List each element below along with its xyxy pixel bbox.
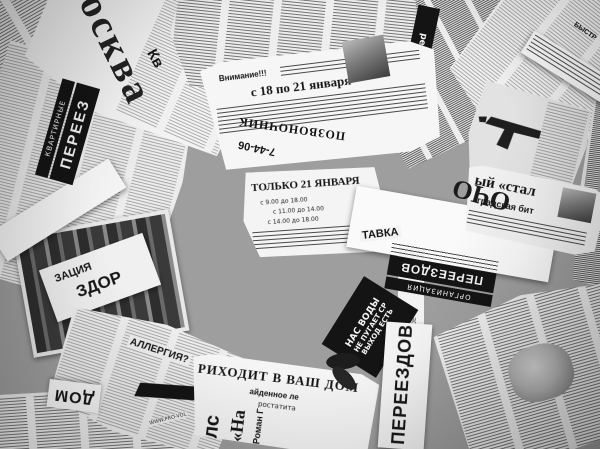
schedule-line: с 9.00 до 18.00: [260, 196, 308, 206]
article-photo: [342, 35, 391, 84]
text-roman: Роман Г: [251, 404, 266, 445]
text-naydennoe: айденное ле: [249, 387, 299, 402]
text-ls: лс: [200, 396, 228, 440]
schedule-line: с 11.00 до 14.00: [273, 205, 325, 216]
headline-vnimanie: Внимание!!!: [218, 69, 267, 84]
headline-pereezdov-big: ПЕРЕЕЗДОВ: [388, 326, 417, 445]
article-photo: [557, 187, 596, 223]
headline-tolko21: ТОЛЬКО 21 ЯНВАРЯ: [251, 175, 360, 195]
newspaper-collage-photo: осква Кв КВАРТИРНЫЕ ПЕРЕЕЗ речи Внимание…: [0, 0, 600, 449]
pereezdov-vertical-scrap: ПЕРЕЕЗДОВ: [378, 322, 433, 449]
schedule-line: с 14.00 до 18.00: [267, 216, 319, 227]
revolver-icon: [468, 102, 548, 167]
text-na-quote: «На: [225, 397, 251, 443]
headline-dom: ДОМ: [53, 385, 95, 408]
